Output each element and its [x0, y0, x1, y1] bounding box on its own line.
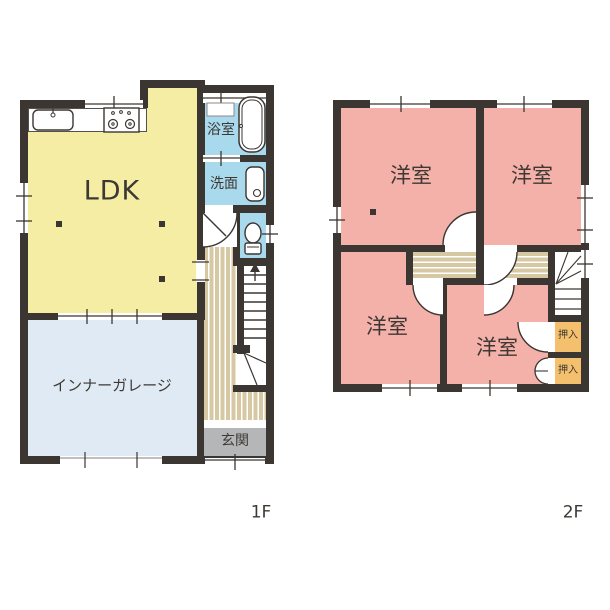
window	[58, 309, 162, 324]
closet-label-top: 押入	[558, 331, 578, 341]
door-opening	[205, 205, 233, 213]
window	[462, 380, 517, 396]
door-arc-double	[535, 358, 548, 384]
wall-opening	[192, 260, 209, 282]
window	[16, 183, 32, 233]
window	[262, 225, 278, 243]
room-label-bedroom-top-left: 洋室	[390, 166, 432, 187]
window	[577, 250, 593, 278]
room-label-bedroom-top-right: 洋室	[511, 166, 553, 187]
window	[577, 185, 593, 243]
window	[329, 207, 345, 233]
bathtub-icon	[239, 97, 265, 152]
floor-label-2f: 2F	[563, 505, 584, 522]
room-label-washroom: 洗面	[210, 177, 238, 191]
kitchen-sink-icon	[33, 108, 73, 130]
door-arc	[443, 212, 476, 245]
door-arc	[484, 285, 514, 315]
window	[497, 96, 552, 112]
closet-label-bottom: 押入	[558, 366, 578, 376]
washbasin-icon	[246, 167, 264, 201]
room-label-bedroom-bottom-left: 洋室	[366, 317, 408, 338]
toilet-icon	[245, 223, 261, 254]
room-label-entrance: 玄関	[221, 434, 249, 448]
door-arc	[413, 285, 443, 315]
door-arc	[203, 213, 237, 247]
stairs-winder-1f	[244, 353, 266, 385]
stairs-treads-1f	[244, 275, 266, 338]
door-arc	[518, 322, 548, 352]
sliding-door	[203, 151, 240, 166]
floor-label-1f: 1F	[251, 505, 272, 522]
vanity-counter	[207, 103, 234, 116]
room-label-bathroom: 浴室	[207, 123, 235, 137]
garage-door-opening	[60, 452, 162, 468]
room-label-garage: インナーガレージ	[52, 379, 172, 394]
entrance-door	[205, 454, 265, 470]
room-label-ldk: LDK	[84, 178, 141, 205]
pillar-marker	[56, 221, 165, 282]
stairs-treads-2f	[555, 252, 581, 309]
window	[370, 96, 430, 112]
room-label-bedroom-bottom-center: 洋室	[476, 338, 518, 359]
stairs-up-arrow-icon	[250, 263, 260, 281]
floorplan-linework	[0, 0, 610, 610]
floorplan-canvas: LDK インナーガレージ 浴室 洗面 玄関 1F 洋室 洋室 洋室 洋室 押入 …	[0, 0, 610, 610]
pillar-marker	[370, 209, 376, 215]
window	[382, 380, 437, 396]
gas-stove-icon	[104, 108, 139, 132]
